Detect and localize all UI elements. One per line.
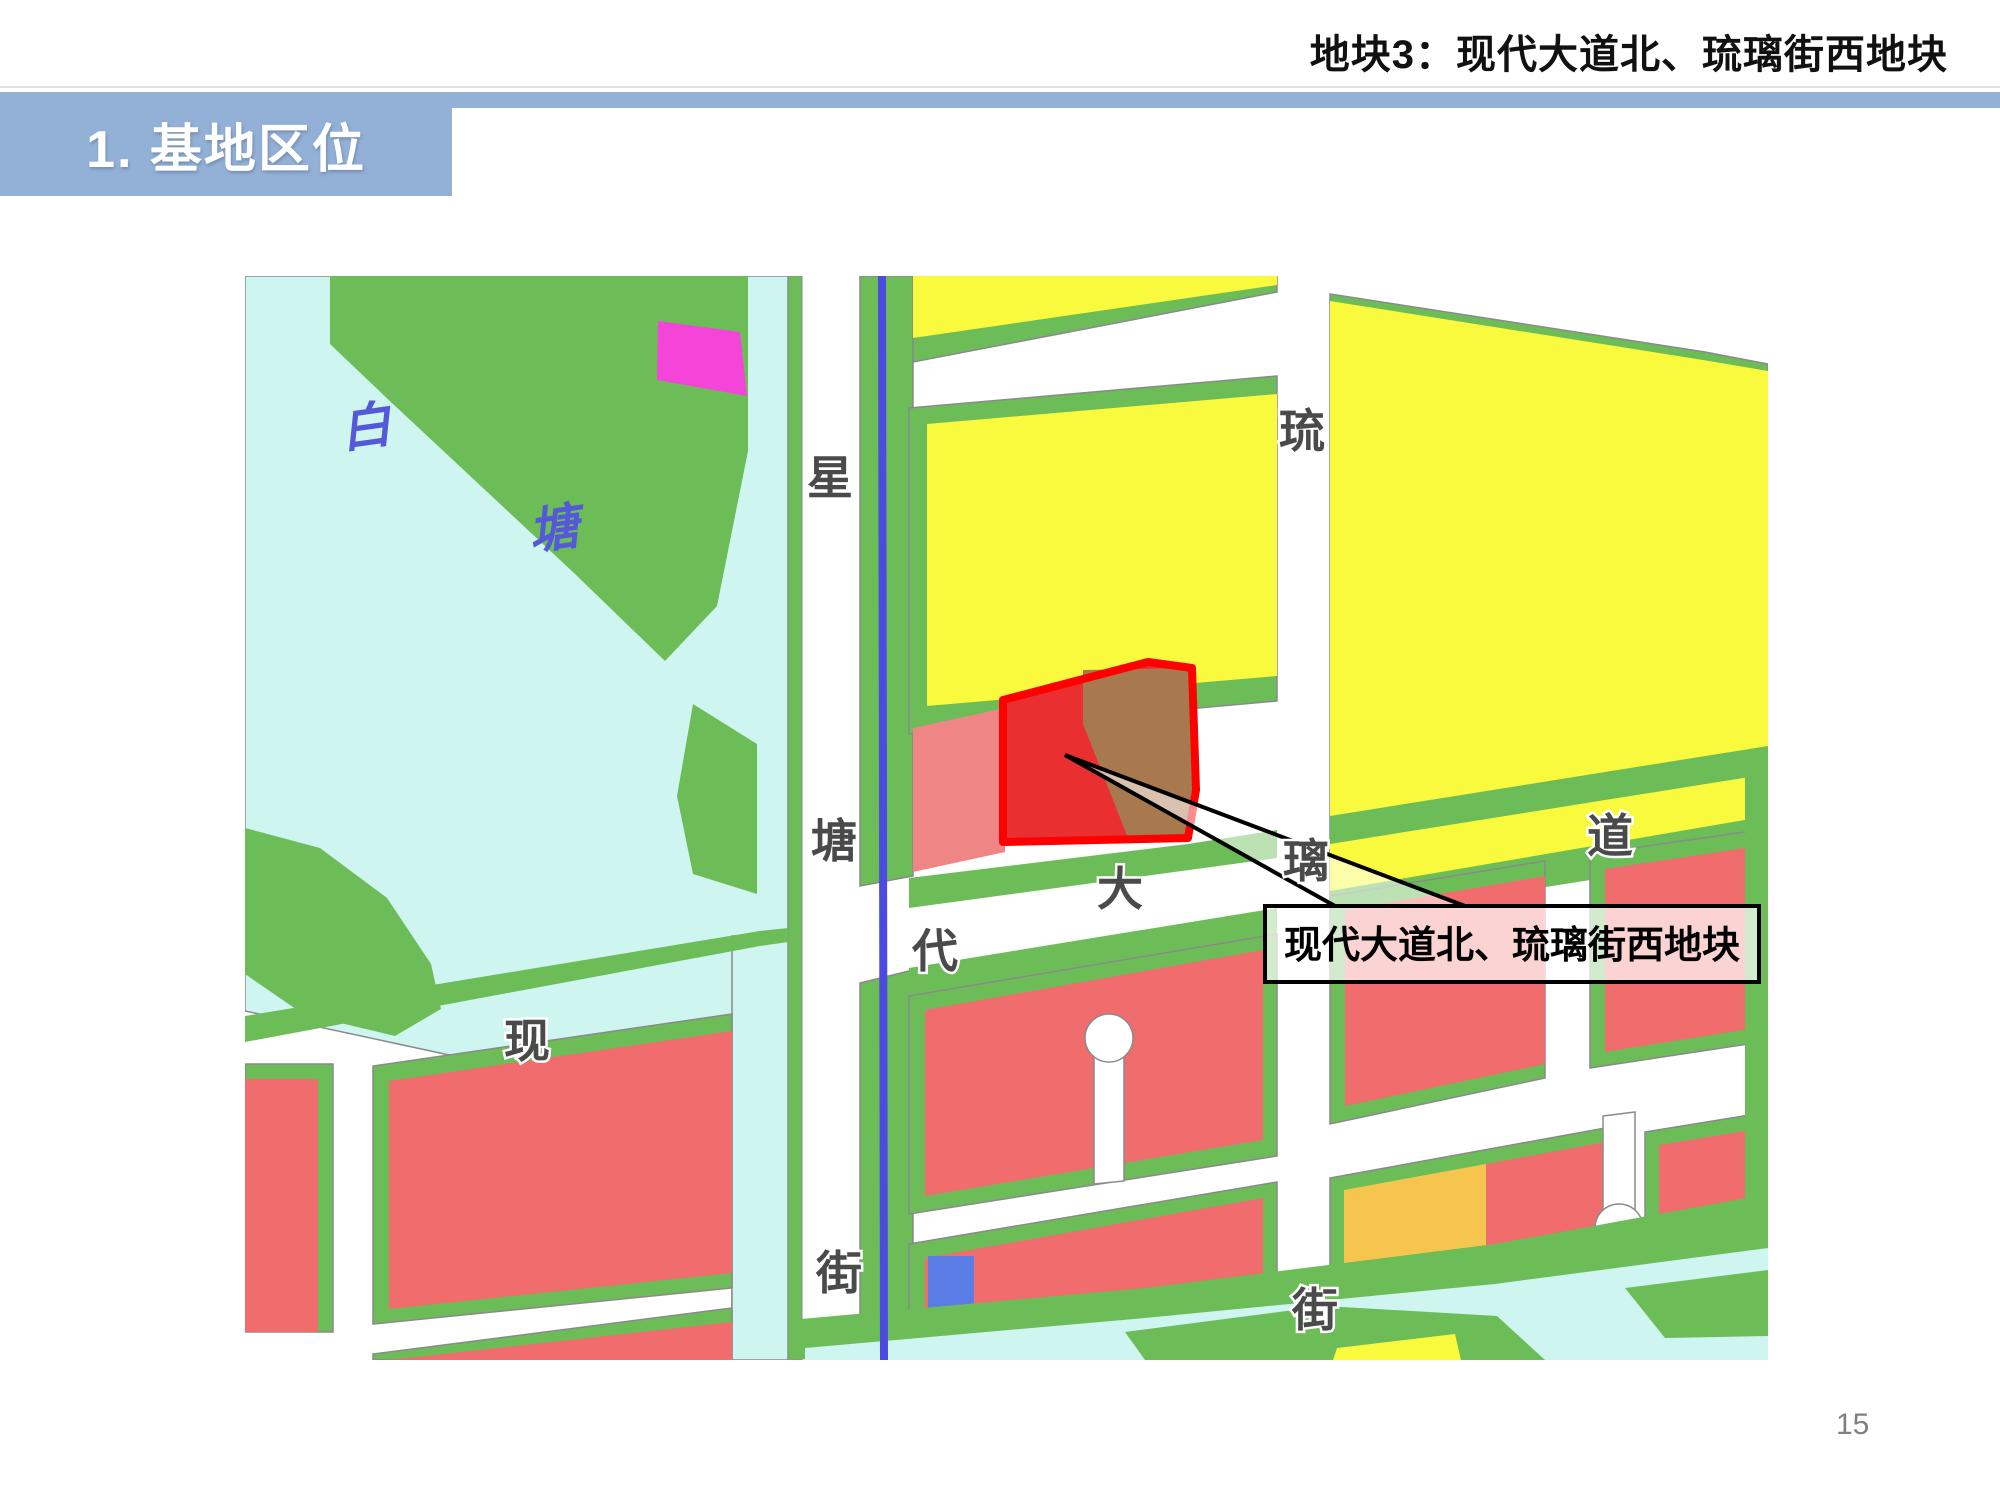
- liuli-char-3: 街: [1291, 1284, 1338, 1336]
- xiandai-char-4: 道: [1587, 810, 1633, 862]
- xingtang-char-1: 星: [807, 452, 853, 504]
- xiandai-char-1: 现: [504, 1015, 550, 1067]
- xingtang-char-3: 街: [815, 1247, 862, 1299]
- yellow-block-top-strip: [913, 276, 1277, 362]
- metro-line: [882, 276, 884, 1360]
- red-block-sw-2: [373, 1014, 732, 1324]
- xingtang-char-2: 塘: [811, 815, 857, 867]
- culdesac-road-2: [1603, 1112, 1635, 1214]
- section-banner: 1. 基地区位: [0, 92, 452, 196]
- page-number: 15: [1836, 1408, 1869, 1442]
- liuli-char-2: 璃: [1283, 835, 1329, 887]
- site-location-map: 现代大道北、琉璃街西地块 白 塘 星 塘 街 现 代 大 道 琉 璃 街: [245, 276, 1768, 1360]
- section-title: 1. 基地区位: [86, 107, 366, 182]
- header-divider: [0, 86, 2000, 88]
- highlighted-parcel: [1003, 662, 1196, 842]
- green-verge-west: [788, 276, 802, 1360]
- red-block-sw-1: [245, 1064, 333, 1332]
- blue-block: [928, 1256, 974, 1312]
- xiandai-char-2: 代: [911, 925, 958, 977]
- slide-title: 地块3：现代大道北、琉璃街西地块: [1310, 22, 1948, 80]
- salmon-block: [913, 708, 1005, 872]
- slide: 地块3：现代大道北、琉璃街西地块 1. 基地区位: [0, 0, 2000, 1500]
- callout-label: 现代大道北、琉璃街西地块: [1284, 925, 1740, 967]
- xiandai-char-3: 大: [1097, 863, 1143, 915]
- canal-strip: [732, 936, 788, 1360]
- zoning-map-svg: 现代大道北、琉璃街西地块 白 塘 星 塘 街 现 代 大 道 琉 璃 街: [245, 276, 1768, 1360]
- liuli-char-1: 琉: [1279, 405, 1325, 457]
